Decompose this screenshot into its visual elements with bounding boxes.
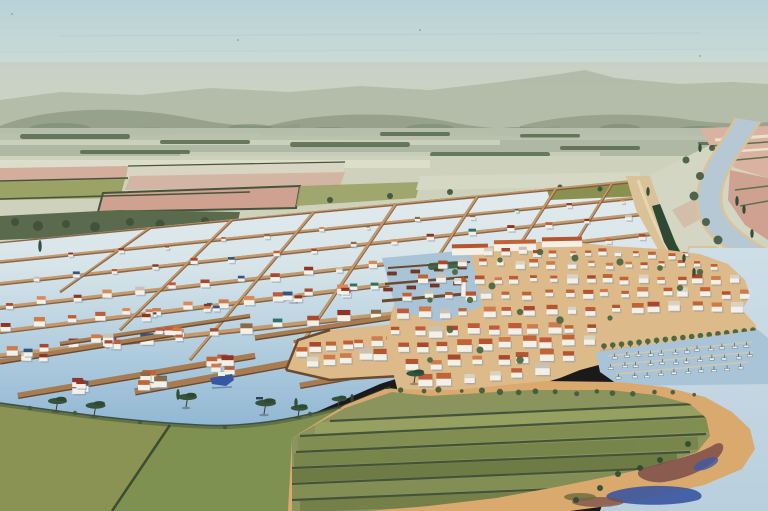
vegetation-blob [90,222,100,232]
building-roof [632,303,644,308]
building-roof [337,310,350,315]
building-roof [6,303,13,306]
tree-clump [290,142,410,147]
building-roof [154,376,166,381]
vegetation-blob [685,441,691,447]
boat-hull [633,365,638,367]
building-roof [398,343,409,347]
building-roof [606,239,612,241]
building-roof [270,273,279,277]
building-roof [397,309,409,314]
vegetation-blob [62,220,70,228]
building-roof [495,277,502,280]
warehouse [542,237,582,248]
building-roof [369,261,377,264]
building-roof [7,346,18,350]
building-roof [527,324,538,328]
building-roof [448,355,461,360]
building-roof [283,292,293,296]
watercolor-painting [0,0,768,511]
pine-canopy-top [414,370,424,374]
vegetation-blob [657,457,663,463]
vegetation-blob [573,497,579,503]
vegetation-blob [138,420,142,424]
building-roof [484,307,496,312]
building-roof [371,283,379,286]
building-roof [585,307,595,311]
building-roof [588,261,594,264]
boat-hull [732,346,737,348]
building-roof [481,289,492,293]
town-layer [382,237,768,396]
building-roof [489,325,500,329]
cypress-tree [682,254,685,262]
pine-shadow [182,407,191,409]
building-roof [458,259,467,263]
building-roof [152,264,158,266]
building-roof [273,319,283,323]
boat-hull [725,369,730,371]
vegetation-blob [553,389,558,394]
building-roof [1,323,11,327]
tree-clump [520,134,580,138]
building-roof [146,309,153,312]
building-roof [429,326,442,331]
pine-shadow [89,416,98,418]
boat-hull [684,351,689,353]
boat-hull [709,358,714,360]
building-roof [584,219,589,221]
building-roof [668,253,675,256]
vegetation-blob [630,391,635,396]
vegetation-blob [387,193,393,199]
paper-speck [419,29,421,31]
harbor-boat [388,272,397,275]
building-roof [625,262,632,265]
tiny-boat [256,397,263,399]
building-roof [620,277,629,281]
building-roof [201,280,210,284]
building-roof [499,337,511,342]
building-roof [585,251,591,253]
vegetation-blob [714,236,723,245]
building-roof [343,341,353,345]
pine-canopy-top [338,396,347,400]
warehouse-roof [542,237,582,242]
building-roof [68,253,73,255]
vegetation-blob [637,465,643,471]
building-roof [391,327,399,330]
boat-hull [673,352,678,354]
boat-hull [719,347,724,349]
town-tree [572,255,579,262]
building-roof [598,248,606,251]
building-roof [311,249,316,251]
building-roof [240,323,252,328]
building-roof [165,246,169,248]
building-roof [700,287,710,291]
boat-hull [659,373,664,375]
building-roof [722,291,731,294]
building-roof [479,258,487,261]
vegetation-blob [533,388,539,394]
building-roof [437,342,448,346]
building-roof [436,274,446,278]
town-tree [657,265,663,271]
tree-clump [20,134,130,139]
building-roof [372,336,383,340]
building-roof [354,340,363,343]
building-roof [274,251,280,253]
building-roof [307,357,318,362]
building-roof [191,258,198,261]
promenade-tree [610,342,616,348]
vegetation-blob [683,157,690,164]
promenade-tree [663,337,669,343]
building-roof [304,267,313,271]
building-roof [693,301,703,305]
boat-hull [674,362,679,364]
boat-hull [622,366,627,368]
building-roof [74,295,82,298]
building-roof [535,362,549,368]
promenade-tree [680,335,686,341]
building-roof [515,209,519,211]
building-roof [637,287,648,291]
town-tree [467,297,473,303]
building-roof [350,284,357,287]
paper-speck [11,13,13,15]
building-roof [568,307,576,310]
tree-clump [560,146,640,150]
mid-streak [0,140,500,145]
building-roof [464,374,474,378]
painting-stage [0,0,768,511]
building-roof [524,306,535,310]
building-roof [678,277,686,280]
boat-reflection [212,387,232,388]
building-roof [91,334,101,338]
building-roof [600,289,608,292]
building-roof [103,334,114,338]
building-roof [730,275,739,279]
building-roof [371,310,381,314]
boat-hull [736,357,741,359]
vegetation-blob [33,221,43,231]
pine-canopy-top [263,398,275,403]
building-roof [472,356,482,360]
building-roof [648,252,656,255]
boat-hull [659,353,664,355]
building-roof [175,335,182,338]
building-roof [603,274,613,278]
building-roof [402,293,411,297]
building-roof [711,276,721,280]
town-tree [537,249,544,256]
building-roof [445,292,452,295]
building-roof [406,359,419,364]
building-roof [73,271,80,274]
vegetation-blob [574,391,579,396]
boat-hull [624,355,629,357]
promenade-tree [627,340,633,346]
building-roof [305,288,313,291]
building-roof [340,353,352,358]
cypress-tree [742,205,745,214]
town-tree [497,257,502,262]
boat-hull [616,377,621,379]
building-roof [639,275,649,279]
promenade-tree [671,336,677,342]
building-roof [550,276,557,279]
building-roof [648,302,660,307]
vegetation-blob [447,189,453,195]
building-roof [415,326,425,330]
building-roof [324,355,336,360]
building-roof [415,217,420,219]
building-roof [204,306,211,309]
building-roof [484,248,492,251]
building-roof [502,307,511,311]
tree-clump [80,150,190,154]
harbor-boat [407,286,416,289]
building-roof [391,239,397,241]
vegetation-blob [615,471,621,477]
vegetation-blob [308,412,312,416]
town-tree [488,282,495,289]
building-roof [68,315,76,318]
cypress-tree [38,240,41,252]
building-roof [228,257,235,260]
building-roof [566,290,574,293]
promenade-tree [619,341,625,347]
building-roof [37,296,46,300]
pine-canopy-top [56,397,67,401]
building-roof [294,295,302,298]
building-roof [659,261,665,263]
building-roof [440,309,450,313]
building-roof [351,242,357,244]
parcel-tree [598,187,603,192]
building-roof [417,342,428,347]
building-roof [539,337,551,342]
vegetation-blob [398,387,403,392]
building-roof [712,303,723,307]
boat-hull [722,358,727,360]
building-roof [545,290,553,293]
cypress-tree [646,187,649,196]
boat-hull [699,370,704,372]
building-roof [547,305,558,309]
building-roof [566,203,571,205]
building-roof [621,200,625,202]
boat-hull [648,364,653,366]
vegetation-blob [497,389,503,395]
boat-hull [636,354,641,356]
pine-canopy-top [186,393,197,397]
boat-hull [738,367,743,369]
building-roof [633,251,639,253]
town-tree [476,346,483,353]
harbor-boat [430,284,439,287]
boat-hull [612,357,617,359]
vegetation-blob [327,197,333,203]
building-roof [211,364,220,368]
cypress-tree [350,394,353,402]
building-roof [152,308,161,311]
pine-shadow [334,407,341,409]
vegetation-blob [223,425,227,429]
warehouse [452,244,488,256]
boat-hull [648,354,653,356]
vegetation-blob [73,411,77,415]
building-roof [336,267,342,270]
building-roof [34,277,40,279]
vegetation-blob [435,387,441,393]
boat-hull [645,375,650,377]
building-roof [511,368,522,372]
building-roof [319,227,324,229]
tree-clump [380,132,450,136]
building-roof [264,234,270,236]
pine-shadow [410,383,419,385]
warehouse-roof [494,240,536,245]
building-roof [475,276,485,280]
building-roof [140,372,150,376]
building-roof [664,288,673,292]
building-roof [219,299,229,303]
building-roof [731,302,743,307]
town-tree [516,356,524,364]
building-roof [34,317,45,321]
town-tree [556,316,564,324]
building-roof [40,344,49,348]
building-roof [530,275,537,278]
town-tree [616,258,623,265]
vegetation-blob [702,218,710,226]
building-roof [490,371,501,375]
building-roof [612,305,620,308]
cypress-tree [176,389,179,400]
building-roof [522,292,531,296]
cypress-tree [735,196,738,206]
pine-canopy-top [298,404,308,408]
hills-layer [0,62,768,137]
building-roof [540,349,554,355]
warehouse [494,240,536,252]
building-roof [221,355,233,360]
vegetation-blob [690,192,699,201]
boat-hull [711,370,716,372]
blue-boat-cabin [218,372,225,376]
building-roof [425,290,434,293]
boat-hull [747,355,752,357]
building-roof [529,259,538,263]
building-roof [438,261,447,265]
boat-hull [686,371,691,373]
vegetation-blob [610,390,616,396]
boat-hull [744,345,749,347]
building-roof [341,288,349,291]
building-roof [135,287,144,291]
promenade-tree [654,338,660,344]
warehouse-roof [452,244,488,249]
building-roof [95,312,105,316]
building-roof [583,290,593,294]
building-roof [694,261,700,263]
pine-shadow [52,411,61,413]
building-roof [466,292,476,296]
building-roof [549,250,557,253]
vegetation-blob [709,145,715,151]
vegetation-blob [516,390,522,396]
building-roof [639,234,646,237]
vegetation-blob [652,390,657,395]
harbor-boat [411,270,420,273]
building-roof [621,291,629,294]
building-roof [105,340,113,343]
paper-speck [237,39,239,41]
building-roof [606,263,613,266]
building-roof [668,301,679,306]
boat-hull [671,372,676,374]
vegetation-blob [422,389,427,394]
pine-shadow [294,417,302,419]
town-tree [447,327,453,333]
paper-speck [699,55,701,57]
tree-clump [160,140,250,144]
building-roof [296,347,307,351]
promenade-tree [645,338,651,344]
town-tree [517,309,523,315]
building-roof [102,290,111,294]
building-roof [168,282,175,285]
vegetation-blob [479,387,485,393]
cypress-tree [698,144,701,152]
building-roof [546,261,555,265]
building-roof [142,314,151,317]
building-roof [570,251,576,253]
building-roof [122,308,130,311]
building-roof [641,262,648,265]
building-roof [516,352,529,357]
building-roof [210,328,219,331]
building-roof [155,328,162,331]
vegetation-blob [692,393,696,397]
building-roof [523,335,536,340]
building-roof [173,327,182,331]
building-roof [587,275,596,278]
marsh-grass [564,493,596,501]
vegetation-blob [126,218,134,226]
boat-hull [694,349,699,351]
building-roof [118,248,124,250]
building-roof [562,335,574,340]
town-tree [427,297,432,302]
vegetation-blob [460,389,464,393]
town-tree [452,269,458,275]
building-roof [468,323,480,328]
boat-hull [684,361,689,363]
building-roof [470,215,475,217]
building-roof [436,373,451,379]
building-roof [309,342,321,347]
building-roof [24,349,33,353]
promenade-tree [636,339,642,345]
building-roof [563,351,574,355]
building-roof [418,275,428,279]
building-roof [502,292,510,295]
